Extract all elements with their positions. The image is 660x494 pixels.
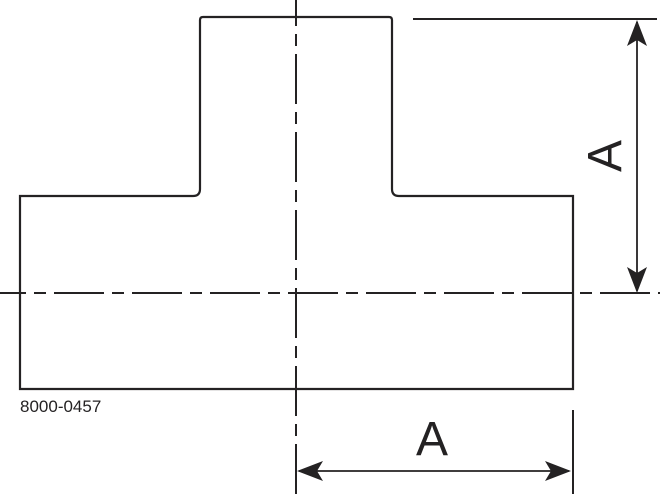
- vertical-dimension: A: [413, 19, 657, 293]
- part-number-label: 8000-0457: [20, 397, 101, 416]
- horizontal-dimension: A: [297, 410, 573, 494]
- horizontal-dimension-label: A: [416, 413, 448, 466]
- technical-drawing: A A 8000-0457: [0, 0, 660, 494]
- vertical-dimension-label: A: [579, 140, 632, 172]
- drawing-svg: A A 8000-0457: [0, 0, 660, 494]
